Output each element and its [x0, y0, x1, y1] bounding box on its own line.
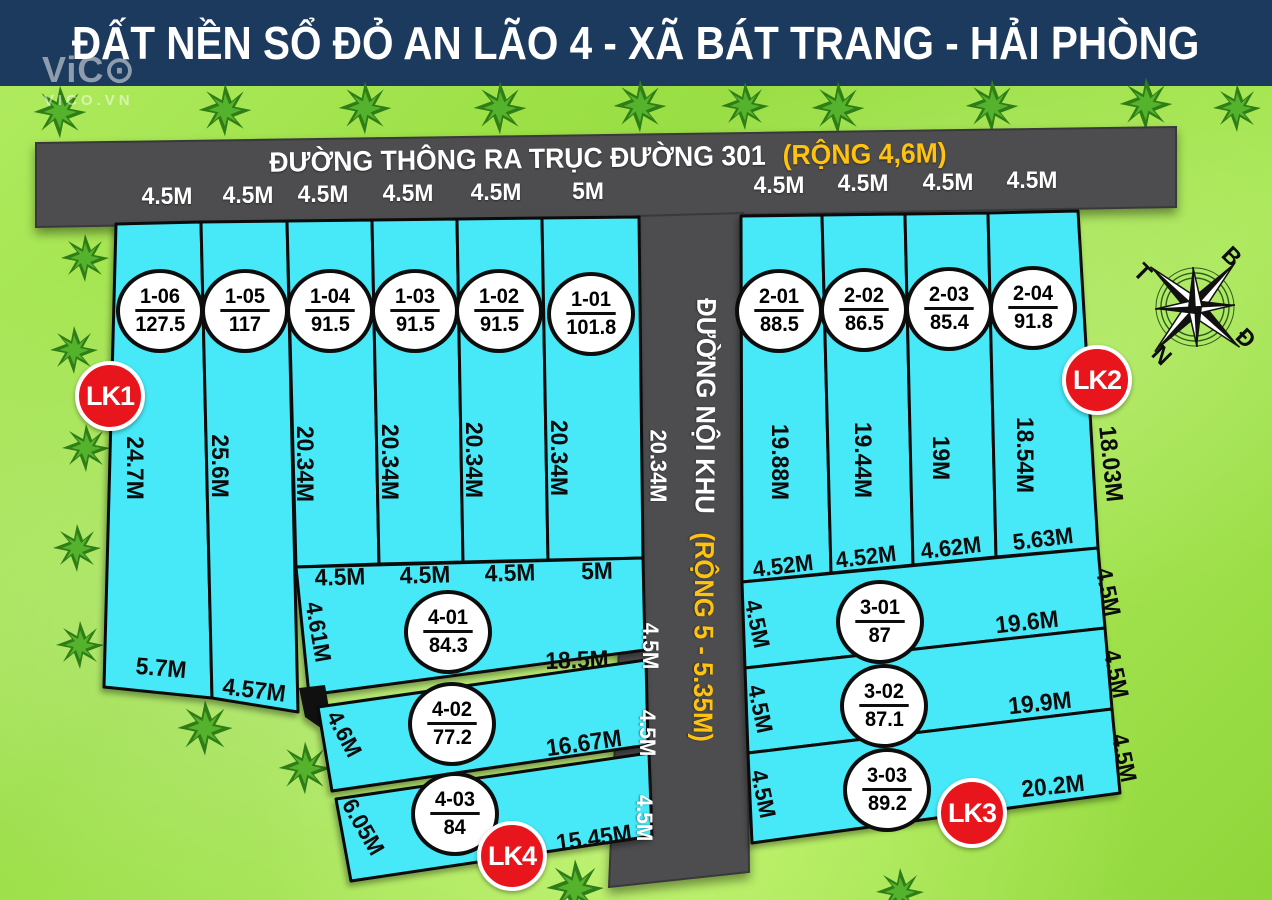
- b1-depth-1: 25.6M: [207, 434, 231, 497]
- plot-badge-2-03: 2-0385.4: [905, 267, 993, 351]
- b2-depth-0: 19.88M: [767, 424, 791, 500]
- b2-depth-1: 19.44M: [850, 422, 874, 498]
- b2-topwidth-0: 4.5M: [754, 174, 805, 198]
- inner-road-side-0: 20.34M: [647, 430, 670, 503]
- vico-site-label: VICO.VN: [42, 92, 136, 109]
- b4-right-0: 18.5M: [545, 648, 609, 674]
- inner-road-side-1: 4.5M: [639, 623, 661, 669]
- plot-badge-4-02: 4-0277.2: [408, 682, 496, 766]
- b4-strip-0: 4.5M: [314, 565, 365, 590]
- plot-badge-1-05: 1-05117: [201, 269, 289, 353]
- inner-road-side-3: 4.5M: [633, 795, 655, 841]
- b4-strip-3: 5M: [581, 560, 613, 585]
- plot-area: 77.2: [433, 725, 472, 750]
- plot-id: 2-04: [1008, 282, 1057, 309]
- plot-badge-2-04: 2-0491.8: [989, 266, 1077, 350]
- top-road-width-note: (RỘNG 4,6M): [782, 137, 946, 170]
- b1-topwidth-4: 4.5M: [471, 181, 522, 205]
- plot-id: 2-01: [754, 285, 803, 312]
- b2-topwidth-3: 4.5M: [1007, 169, 1058, 193]
- plot-id: 2-02: [839, 284, 888, 311]
- plot-area: 84: [444, 815, 466, 840]
- inner-road-name: ĐƯỜNG NỘI KHU (RỘNG 5 - 5.35M): [689, 298, 720, 742]
- plot-area: 87.1: [865, 707, 904, 732]
- plot-area: 127.5: [135, 312, 185, 337]
- plot-id: 1-02: [474, 285, 523, 312]
- plot-id: 3-02: [859, 680, 908, 707]
- plot-area: 87: [869, 623, 891, 648]
- land-plot-map: ĐẤT NỀN SỔ ĐỎ AN LÃO 4 - XÃ BÁT TRANG - …: [0, 0, 1272, 900]
- inner-road-side-2: 4.5M: [636, 710, 658, 756]
- plot-badge-1-06: 1-06127.5: [116, 269, 204, 353]
- b1-depth-5: 20.34M: [546, 420, 570, 496]
- plot-id: 1-04: [305, 285, 354, 312]
- plot-badge-1-02: 1-0291.5: [455, 269, 543, 353]
- plot-badge-3-01: 3-0187: [836, 580, 924, 664]
- plot-badge-1-01: 1-01101.8: [547, 272, 635, 356]
- vico-watermark: ViC⊙ VICO.VN: [42, 52, 136, 109]
- map-canvas: [0, 0, 1272, 900]
- b4-strip-2: 4.5M: [484, 561, 535, 586]
- plot-id: 3-01: [855, 596, 904, 623]
- b2-topwidth-1: 4.5M: [838, 172, 889, 196]
- badge-lk1: LK1: [75, 361, 145, 431]
- b2-depth-3: 18.54M: [1012, 417, 1036, 493]
- plot-badge-3-03: 3-0389.2: [843, 748, 931, 832]
- b1-depth-0: 24.7M: [122, 436, 146, 499]
- plot-id: 4-01: [423, 606, 472, 633]
- b1-depth-3: 20.34M: [377, 424, 401, 500]
- badge-lk4: LK4: [477, 821, 547, 891]
- plot-id: 1-06: [135, 285, 184, 312]
- b2-right-edge: 18.03M: [1094, 425, 1126, 503]
- b1-topwidth-3: 4.5M: [383, 182, 434, 206]
- plot-badge-4-01: 4-0184.3: [404, 590, 492, 674]
- b1-depth-4: 20.34M: [461, 422, 485, 498]
- inner-road-width-note: (RỘNG 5 - 5.35M): [688, 532, 720, 742]
- plot-area: 88.5: [760, 312, 799, 337]
- plot-area: 91.5: [480, 312, 519, 337]
- b1-topwidth-5: 5M: [572, 180, 604, 204]
- b1-topwidth-2: 4.5M: [298, 183, 349, 207]
- plot-area: 86.5: [845, 311, 884, 336]
- b2-topwidth-2: 4.5M: [923, 171, 974, 195]
- plot-area: 91.5: [311, 312, 350, 337]
- plot-id: 1-03: [390, 285, 439, 312]
- plot-badge-1-03: 1-0391.5: [371, 269, 459, 353]
- plot-id: 2-03: [924, 283, 973, 310]
- plot-area: 91.8: [1014, 309, 1053, 334]
- b4-strip-1: 4.5M: [399, 563, 450, 588]
- plot-id: 3-03: [862, 764, 911, 791]
- b1-topwidth-1: 4.5M: [223, 184, 274, 208]
- badge-lk2: LK2: [1062, 345, 1132, 415]
- plot-badge-3-02: 3-0287.1: [840, 664, 928, 748]
- compass-rose-icon: [1110, 222, 1272, 391]
- plot-id: 4-03: [430, 788, 479, 815]
- plot-area: 101.8: [566, 315, 616, 340]
- inner-road-title: ĐƯỜNG NỘI KHU: [690, 298, 722, 514]
- plot-1-01-shape: [542, 217, 643, 560]
- b1-topwidth-0: 4.5M: [142, 185, 193, 209]
- plot-area: 91.5: [396, 312, 435, 337]
- b1-depth-2: 20.34M: [292, 426, 316, 502]
- plot-id: 4-02: [427, 698, 476, 725]
- plot-id: 1-05: [220, 285, 269, 312]
- plot-badge-2-01: 2-0188.5: [735, 269, 823, 353]
- badge-lk3: LK3: [937, 778, 1007, 848]
- plot-badge-1-04: 1-0491.5: [286, 269, 374, 353]
- b1-bottom-0: 5.7M: [135, 655, 188, 683]
- b2-depth-2: 19M: [928, 436, 952, 480]
- plot-2-03-shape: [905, 213, 996, 565]
- plot-area: 84.3: [429, 633, 468, 658]
- plot-badge-2-02: 2-0286.5: [820, 268, 908, 352]
- plot-area: 89.2: [868, 791, 907, 816]
- vico-logo: ViC⊙: [42, 52, 136, 88]
- plot-id: 1-01: [566, 288, 615, 315]
- plot-area: 117: [229, 312, 261, 337]
- plot-area: 85.4: [930, 310, 969, 335]
